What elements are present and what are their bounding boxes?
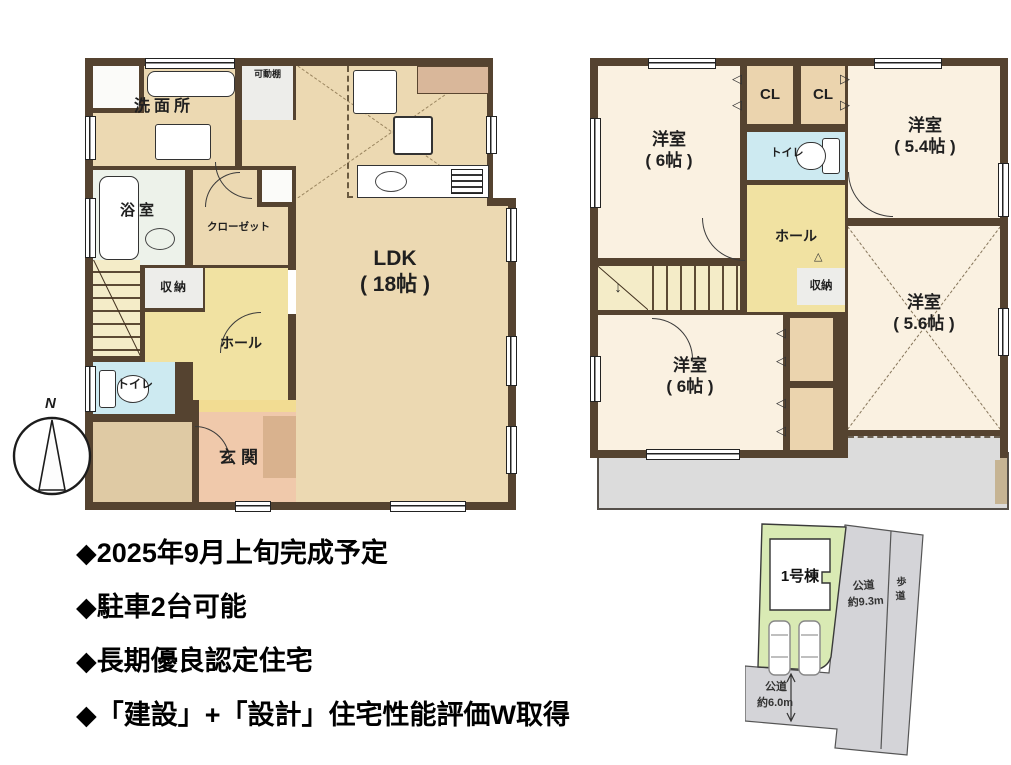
room-ldk-east	[487, 206, 508, 502]
window	[506, 208, 517, 262]
closet-box	[257, 170, 292, 207]
entrance-step	[199, 400, 296, 412]
window	[590, 118, 601, 208]
room-storage-topleft	[93, 66, 144, 113]
shoe-cabinet	[263, 416, 296, 478]
stairs-1f	[93, 260, 140, 356]
window	[390, 501, 466, 512]
corridor	[242, 120, 296, 166]
window	[145, 58, 235, 69]
stairs-2f-landing	[598, 266, 648, 310]
room-cl-a	[747, 66, 793, 124]
road-bottom-label-1: 公道	[765, 679, 787, 693]
room-movable-shelf	[242, 66, 293, 120]
note-item: ◆長期優良認定住宅	[76, 639, 716, 678]
toilet-bowl-1f	[117, 375, 149, 403]
note-item: ◆「建設」+「設計」住宅性能評価W取得	[76, 693, 716, 732]
kitchen-island	[393, 116, 433, 155]
note-item: ◆2025年9月上旬完成予定	[76, 531, 716, 570]
stairs-2f	[598, 266, 740, 310]
pantry	[417, 66, 489, 94]
balcony-side-wall	[995, 454, 1007, 504]
kitchen-sink	[375, 171, 407, 192]
car-icon	[769, 621, 790, 675]
room-southwest	[93, 422, 192, 502]
toilet-bowl-2f	[796, 142, 826, 170]
toilet-tank-1f	[99, 370, 116, 408]
bathtub	[99, 176, 139, 260]
laundry-counter	[147, 71, 235, 97]
road-side-label-1: 公道	[852, 577, 875, 593]
entrance-door	[235, 501, 271, 512]
window	[648, 58, 716, 69]
opening-hall-ldk	[288, 270, 296, 314]
room-south-6	[598, 315, 783, 450]
refrigerator	[353, 70, 397, 114]
sidewalk-label-2: 道	[895, 589, 906, 603]
floorplan-flyer: 洗面所 可動棚 浴室 クローゼット 収納 トイレ ホール 玄関 LDK ( 18…	[0, 0, 1011, 765]
window	[506, 426, 517, 474]
compass: N	[10, 390, 94, 502]
window	[85, 198, 96, 258]
room-cl-c	[790, 318, 833, 381]
balcony	[597, 452, 1009, 510]
window	[998, 308, 1009, 356]
hall-west	[145, 312, 193, 362]
room-storage-1f	[145, 268, 203, 308]
window	[998, 163, 1009, 217]
sidewalk-label-1: 歩	[896, 575, 907, 589]
room-cl-b	[801, 66, 845, 124]
road-bottom-label-2: 約6.0m	[757, 695, 793, 709]
compass-north-label: N	[45, 395, 57, 412]
room-storage-2f	[797, 268, 845, 305]
site-plan: 1号棟 公道 約9.3m 歩 道 公道 約6.0m	[745, 517, 1010, 762]
hall-upper	[205, 268, 288, 312]
room-ldk	[296, 66, 487, 502]
floor2-plan: ↓ ◁ ◁ ▷ ▷ ◁ ◁ ◁ ◁ △ 洋室 ( 6	[590, 58, 1008, 458]
note-item: ◆駐車2台可能	[76, 585, 716, 624]
kitchen-stove	[451, 169, 483, 194]
washbasin	[155, 124, 211, 160]
room-cl-d	[790, 388, 833, 450]
window	[646, 449, 740, 460]
room-east-56	[848, 226, 1000, 430]
kitchen-dash-left	[347, 66, 349, 198]
car-icon	[799, 621, 820, 675]
window	[590, 356, 601, 402]
window	[506, 336, 517, 386]
site-building-label: 1号棟	[781, 567, 820, 585]
window	[85, 116, 96, 160]
notes-list: ◆2025年9月上旬完成予定 ◆駐車2台可能 ◆長期優良認定住宅 ◆「建設」+「…	[76, 531, 716, 747]
window	[874, 58, 942, 69]
room-label-east56: 洋室 ( 5.6帖 )	[866, 283, 982, 343]
floor1-plan: 洗面所 可動棚 浴室 クローゼット 収納 トイレ ホール 玄関 LDK ( 18…	[85, 58, 516, 510]
stairs-down-arrow: ↓	[608, 276, 628, 300]
balcony-inset	[848, 436, 1000, 460]
bath-drain	[145, 228, 175, 250]
back-door	[486, 116, 497, 154]
